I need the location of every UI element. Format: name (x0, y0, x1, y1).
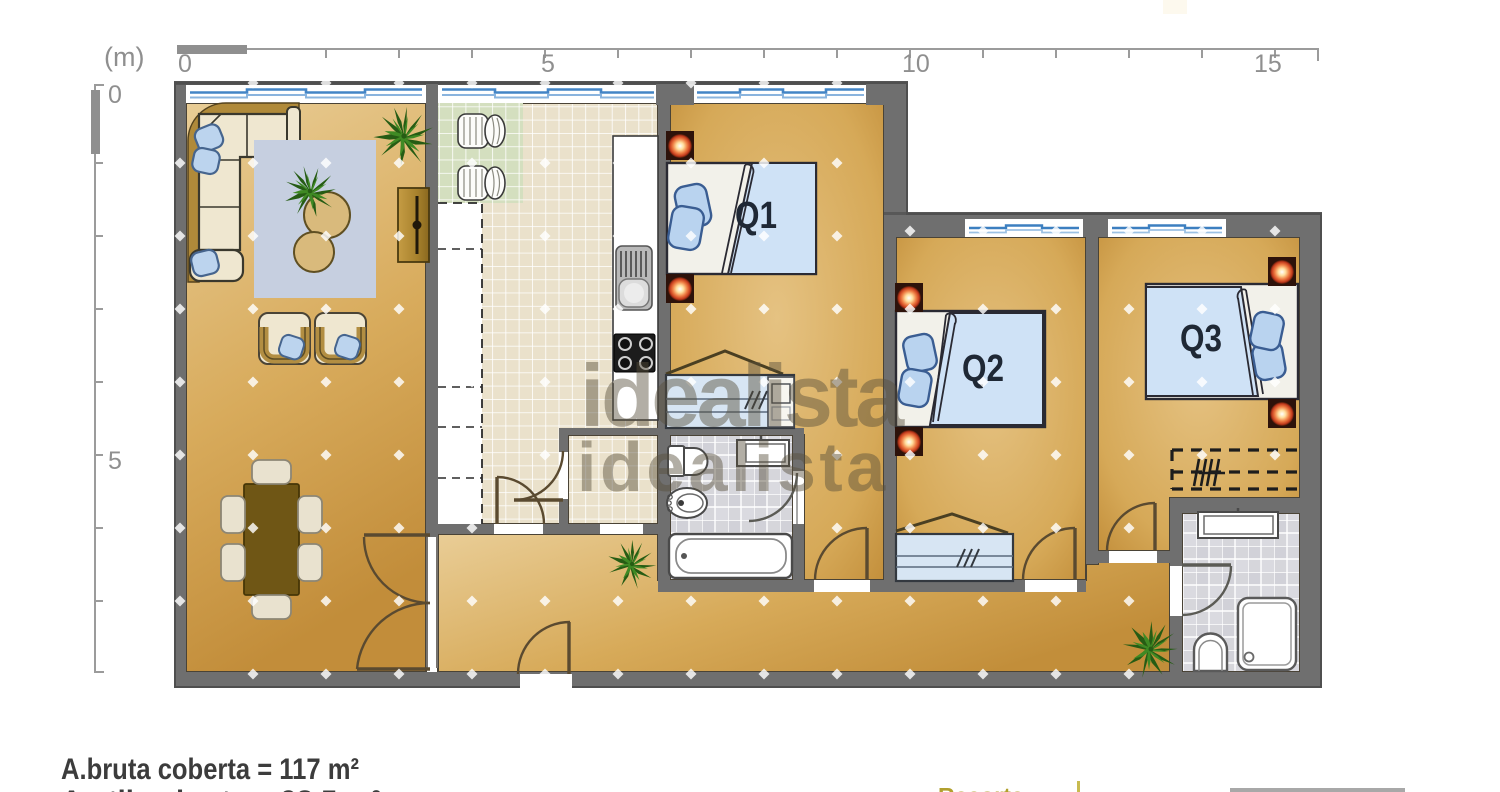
svg-text:Recorte: Recorte (938, 783, 1024, 792)
svg-text:0: 0 (178, 50, 192, 78)
svg-text:A.util coberta = 98,5 m²: A.util coberta = 98,5 m² (61, 785, 381, 792)
svg-text:A.bruta coberta = 117 m²: A.bruta coberta = 117 m² (61, 753, 359, 786)
svg-text:5: 5 (541, 50, 555, 78)
svg-text:Q1: Q1 (735, 195, 777, 237)
svg-text:5: 5 (108, 447, 122, 475)
svg-text:10: 10 (902, 50, 930, 78)
svg-text:idealista: idealista (577, 428, 889, 506)
svg-text:15: 15 (1254, 50, 1282, 78)
svg-text:0: 0 (108, 81, 122, 109)
svg-text:(m): (m) (104, 42, 144, 72)
svg-text:Q3: Q3 (1180, 318, 1222, 360)
